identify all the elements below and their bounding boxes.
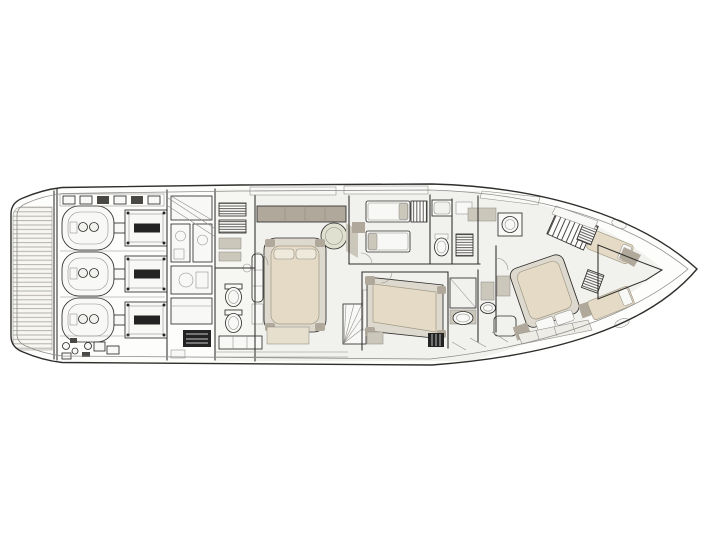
crew-locker (219, 220, 246, 233)
twin-bed-2 (366, 231, 410, 252)
sink (502, 217, 518, 233)
twin-bed-1 (366, 201, 410, 222)
master-sofa (252, 254, 263, 302)
linen-locker (456, 234, 473, 256)
crew-toilet-2 (225, 310, 242, 333)
floorplan-svg: Lower deck general arrangement (0, 0, 720, 539)
crew-toilet-1 (225, 284, 242, 307)
crew-locker (219, 203, 246, 216)
wardrobe (411, 201, 427, 222)
stairs-aft (343, 304, 366, 344)
crew-bench (219, 336, 262, 349)
sink (481, 303, 496, 314)
pillow (369, 234, 378, 250)
master-bed (264, 238, 326, 332)
shower (494, 316, 516, 336)
sink (453, 312, 473, 325)
nightstand (352, 222, 365, 233)
toilet (435, 238, 449, 256)
bathroom-guest (450, 278, 476, 325)
master-bench (267, 327, 309, 344)
yacht-floorplan-image: Lower deck general arrangement (0, 0, 720, 539)
master-dresser (252, 304, 263, 324)
pillow (274, 249, 294, 259)
swim-platform (13, 207, 52, 350)
engine-room (60, 194, 214, 359)
master-cabinet (257, 206, 346, 222)
pillow (296, 249, 316, 259)
ac-grate (428, 333, 444, 347)
grate-box (183, 330, 211, 347)
pillow (399, 204, 408, 220)
